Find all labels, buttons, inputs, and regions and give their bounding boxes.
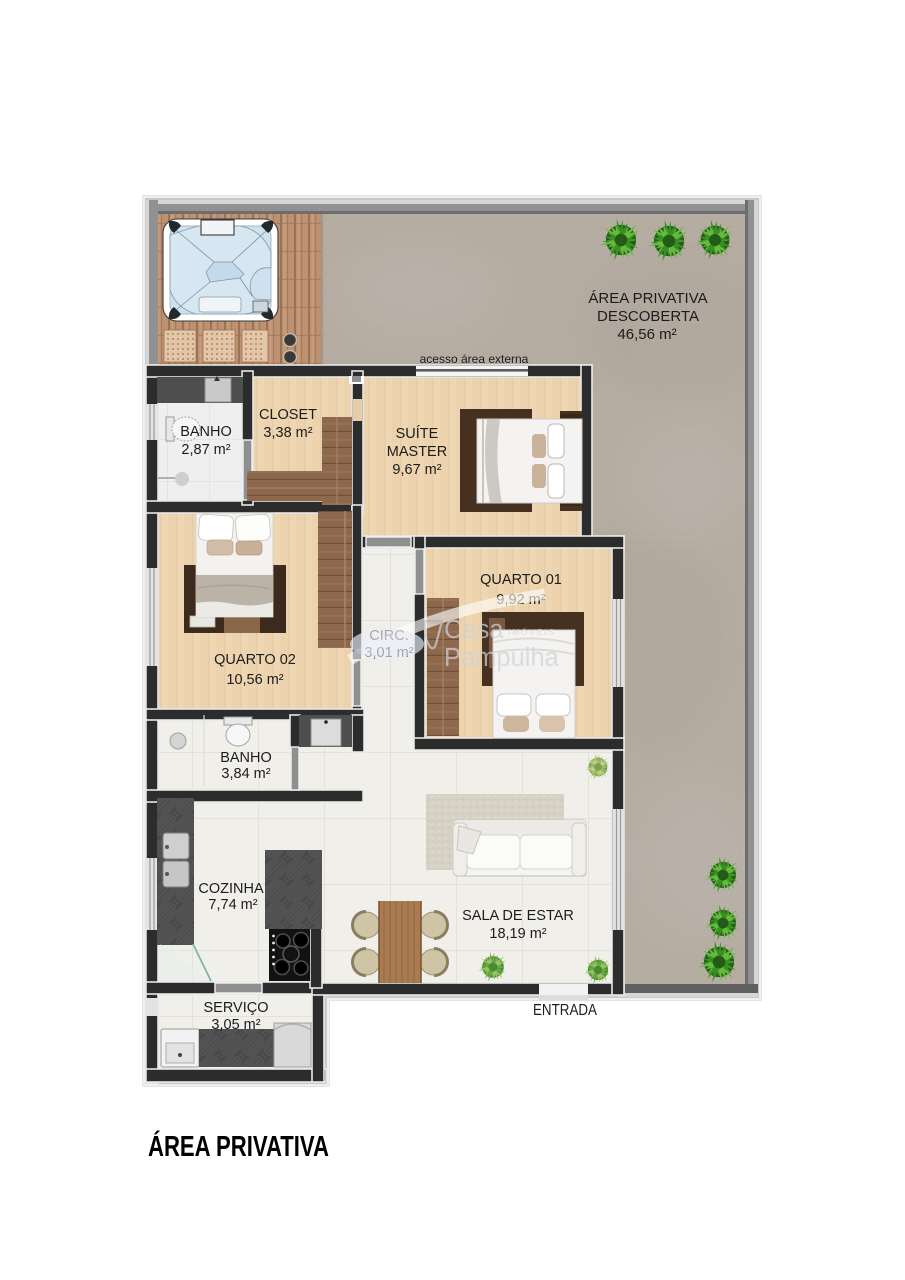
svg-text:9,67 m²: 9,67 m² xyxy=(392,462,441,478)
svg-text:acesso área externa: acesso área externa xyxy=(420,352,529,366)
svg-text:COZINHA: COZINHA xyxy=(198,881,264,897)
svg-text:SALA DE ESTAR: SALA DE ESTAR xyxy=(462,908,574,924)
svg-text:10,56 m²: 10,56 m² xyxy=(226,672,283,688)
svg-text:ÁREA PRIVATIVA: ÁREA PRIVATIVA xyxy=(148,1129,329,1163)
svg-text:DESCOBERTA: DESCOBERTA xyxy=(597,308,699,325)
svg-text:Pampulha: Pampulha xyxy=(444,644,560,672)
svg-text:BANHO: BANHO xyxy=(220,750,272,766)
svg-text:46,56 m²: 46,56 m² xyxy=(617,326,676,343)
svg-text:IMÓVEIS: IMÓVEIS xyxy=(508,627,556,637)
svg-text:ENTRADA: ENTRADA xyxy=(533,1002,598,1019)
svg-text:3,38 m²: 3,38 m² xyxy=(263,425,312,441)
svg-text:3,84 m²: 3,84 m² xyxy=(221,766,270,782)
svg-text:18,19 m²: 18,19 m² xyxy=(489,926,546,942)
svg-text:CLOSET: CLOSET xyxy=(259,407,317,423)
svg-text:ÁREA PRIVATIVA: ÁREA PRIVATIVA xyxy=(588,290,707,307)
svg-text:SERVIÇO: SERVIÇO xyxy=(203,1000,268,1016)
svg-text:MASTER: MASTER xyxy=(387,444,447,460)
svg-text:BANHO: BANHO xyxy=(180,424,232,440)
svg-text:Casa: Casa xyxy=(444,616,504,644)
svg-text:QUARTO 01: QUARTO 01 xyxy=(480,572,562,588)
svg-text:2,87 m²: 2,87 m² xyxy=(181,442,230,458)
svg-text:3,05 m²: 3,05 m² xyxy=(211,1017,260,1033)
svg-text:QUARTO 02: QUARTO 02 xyxy=(214,652,296,668)
svg-text:SUÍTE: SUÍTE xyxy=(396,425,439,442)
svg-text:7,74 m²: 7,74 m² xyxy=(208,897,257,913)
